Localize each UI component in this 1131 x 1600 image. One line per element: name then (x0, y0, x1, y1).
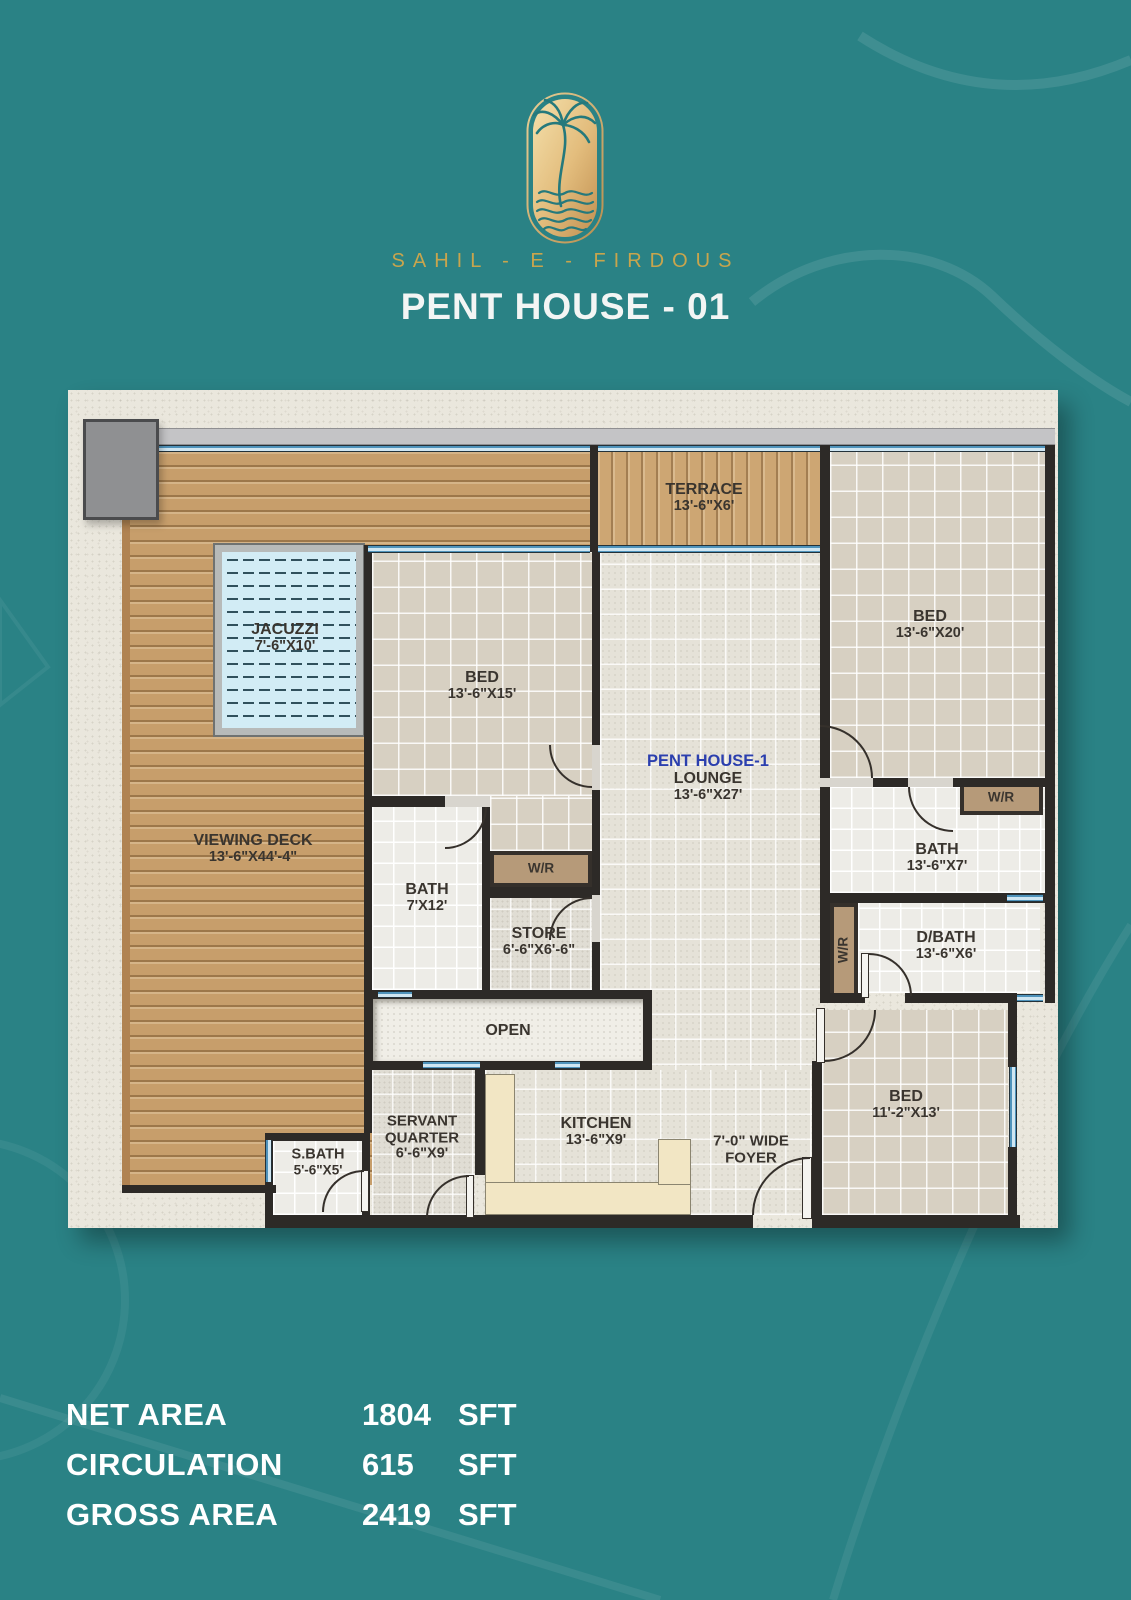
floor-plan: TERRACE13'-6"X6' BED13'-6"X20' JACUZZI7'… (68, 390, 1058, 1228)
wall (475, 1062, 485, 1175)
parapet-band (128, 428, 1055, 445)
wall (265, 1133, 370, 1141)
wall (364, 1062, 372, 1133)
wall (122, 1185, 276, 1193)
wall (820, 993, 865, 1003)
window (1017, 994, 1043, 1002)
label-jacuzzi: JACUZZI7'-6"X10' (251, 621, 319, 655)
label-open: OPEN (485, 1022, 530, 1040)
wall (905, 993, 1017, 1003)
label-wr-bed20: W/R (988, 791, 1014, 806)
wall (812, 1215, 1020, 1228)
palm-beach-logo (526, 92, 604, 244)
wall (592, 545, 600, 745)
window (378, 991, 412, 998)
label-terrace: TERRACE13'-6"X6' (665, 481, 742, 515)
wall (490, 887, 592, 898)
wall (364, 796, 445, 807)
wall (820, 445, 830, 1003)
brochure-page: { "header": { "brand": "SAHIL - E - FIRD… (0, 0, 1131, 1600)
window (1007, 894, 1043, 902)
stat-label: GROSS AREA (66, 1497, 362, 1533)
stat-value: 2419 (362, 1497, 458, 1533)
door-opening (908, 778, 953, 787)
door-opening (592, 745, 600, 790)
label-kitchen: KITCHEN13'-6"X9' (560, 1115, 631, 1149)
wall (590, 445, 598, 552)
stat-label: CIRCULATION (66, 1447, 362, 1483)
window (368, 545, 590, 553)
label-lounge: PENT HOUSE-1 LOUNGE 13'-6"X27' (647, 752, 769, 804)
terrace-glass-doors (598, 545, 820, 553)
wall (265, 1215, 753, 1228)
wall (592, 788, 600, 897)
label-bed15: BED13'-6"X15' (448, 669, 517, 703)
area-statistics: NET AREA 1804 SFT CIRCULATION 615 SFT GR… (66, 1390, 517, 1540)
page-title: PENT HOUSE - 01 (0, 286, 1131, 328)
bed15-alcove-floor (490, 796, 592, 851)
wall (364, 545, 372, 990)
stat-label: NET AREA (66, 1397, 362, 1433)
kitchen-counter (658, 1139, 691, 1185)
wall (482, 796, 490, 990)
label-servant-quarter: SERVANT QUARTER 6'-6"X9' (385, 1114, 459, 1163)
label-store: STORE6'-6"X6'-6" (503, 925, 575, 959)
stat-row-circulation: CIRCULATION 615 SFT (66, 1440, 517, 1490)
door-leaf (861, 953, 869, 998)
label-bed11: BED11'-2"X13' (872, 1088, 940, 1122)
door-opening (445, 796, 490, 807)
window (265, 1140, 272, 1182)
wall (1008, 1147, 1017, 1218)
kitchen-counter (485, 1182, 691, 1215)
wall (812, 1061, 822, 1218)
label-sbath: S.BATH5'-6"X5' (292, 1148, 345, 1179)
label-bed20: BED13'-6"X20' (896, 608, 965, 642)
stat-unit: SFT (458, 1397, 517, 1433)
label-wr-dbath: W/R (837, 937, 852, 963)
stat-unit: SFT (458, 1497, 517, 1533)
door-opening (820, 778, 873, 787)
label-bath13: BATH13'-6"X7' (907, 841, 968, 875)
brand-name: SAHIL - E - FIRDOUS (0, 250, 1131, 273)
window (423, 1061, 480, 1069)
label-dbath: D/BATH13'-6"X6' (916, 929, 977, 963)
deck-top-strip (376, 452, 590, 552)
service-block (83, 419, 159, 520)
wall (1045, 445, 1055, 1003)
window (555, 1061, 580, 1069)
wall (873, 778, 908, 787)
stat-row-gross-area: GROSS AREA 2419 SFT (66, 1490, 517, 1540)
stat-unit: SFT (458, 1447, 517, 1483)
label-foyer: 7'-0" WIDE FOYER (713, 1134, 789, 1167)
label-bath7: BATH7'X12' (405, 881, 448, 915)
wall (592, 940, 600, 998)
wall (1008, 1003, 1017, 1067)
door-opening (592, 895, 600, 942)
window (1009, 1067, 1017, 1147)
label-viewing-deck: VIEWING DECK13'-6"X44'-4" (193, 832, 312, 866)
stat-row-net-area: NET AREA 1804 SFT (66, 1390, 517, 1440)
stat-value: 615 (362, 1447, 458, 1483)
wall (953, 778, 1055, 787)
label-wr-bed15: W/R (528, 862, 554, 877)
stat-value: 1804 (362, 1397, 458, 1433)
